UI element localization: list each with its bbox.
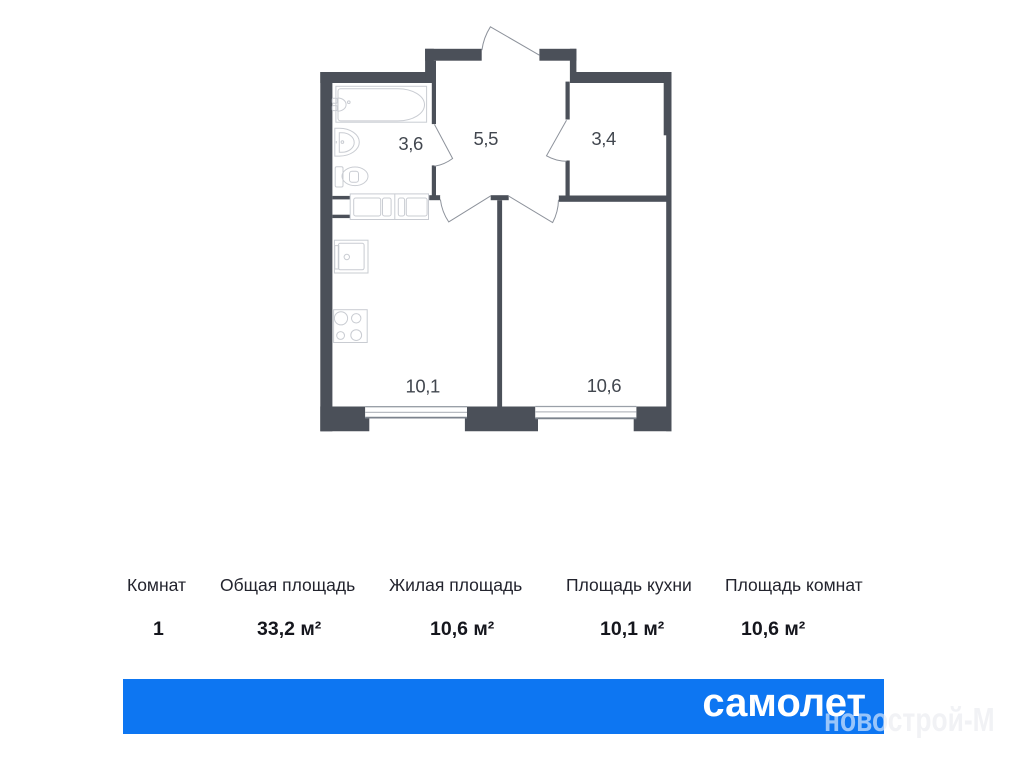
svg-text:3,4: 3,4 xyxy=(591,128,616,149)
svg-text:10,1: 10,1 xyxy=(405,375,440,396)
svg-text:10,6: 10,6 xyxy=(587,375,622,396)
svg-text:5,5: 5,5 xyxy=(474,128,499,149)
svg-text:3,6: 3,6 xyxy=(398,133,423,154)
